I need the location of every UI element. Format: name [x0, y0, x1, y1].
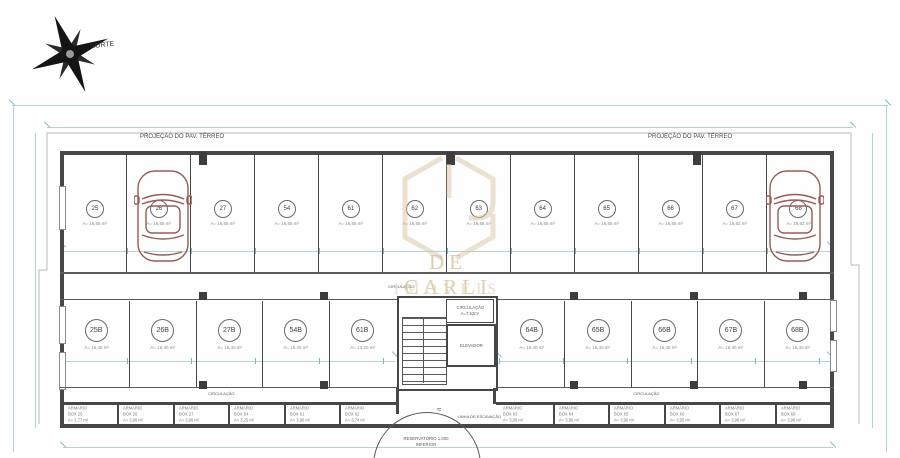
storage-box-label: A= 3,96 m²	[725, 418, 745, 423]
stall-area: A= 18,56 m²	[466, 221, 491, 226]
car-top-view-icon	[766, 169, 824, 268]
parking-stall-25B: 25BA= 16,40 m²	[64, 301, 131, 387]
storage-box-label: A= 3,74 m²	[345, 418, 365, 423]
wall-opening	[830, 300, 837, 332]
stall-number: 27B	[218, 319, 241, 342]
stall-number: 67B	[719, 319, 742, 342]
stall-number: 67	[726, 200, 744, 218]
stall-number: 61B	[351, 319, 374, 342]
stall-number: 66	[662, 200, 680, 218]
stall-number: 27	[214, 200, 232, 218]
storage-box-box-54: ARMÁRIOBOX 54A= 3,25 m²	[230, 405, 286, 425]
projection-label-right: PROJEÇÃO DO PAV. TÉRREO	[648, 134, 732, 140]
parking-stall-61: 61A= 18,56 m²	[319, 155, 383, 272]
wall-opening	[830, 340, 837, 372]
storage-box-label: A= 3,05 m²	[503, 418, 523, 423]
reservoir-line1: RESERVATÓRIO 1.000	[383, 436, 470, 441]
parking-stall-54: 54A= 18,56 m²	[255, 155, 319, 272]
elevator: ELEVADOR	[446, 324, 496, 367]
storage-box-box-63: ARMÁRIOBOX 63A= 3,05 m²	[499, 405, 555, 425]
stall-front-line-top	[60, 272, 834, 274]
stall-area: A= 18,56 m²	[211, 221, 236, 226]
storage-box-label: BOX 66	[670, 412, 684, 417]
storage-box-label: A= 3,96 m²	[179, 418, 199, 423]
storage-box-label: ARMÁRIO	[503, 406, 522, 411]
stall-area: A= 16,40 m²	[652, 345, 677, 350]
stall-number: 26B	[151, 319, 174, 342]
stall-area: A= 18,56 m²	[275, 221, 300, 226]
column	[690, 292, 698, 300]
parking-row-bottom-right: 64BA= 16,40 m²65BA= 16,40 m²66BA= 16,40 …	[499, 301, 830, 387]
storage-box-box-27: ARMÁRIOBOX 27A= 3,96 m²	[175, 405, 231, 425]
parking-stall-26B: 26BA= 16,40 m²	[130, 301, 197, 387]
stall-number: 64B	[520, 319, 543, 342]
stall-area: A= 19,82 m²	[722, 221, 747, 226]
stair-rail	[423, 317, 424, 383]
storage-box-label: BOX 25	[68, 412, 82, 417]
storage-box-label: ARMÁRIO	[614, 406, 633, 411]
wall-segment	[396, 388, 399, 414]
storage-box-label: A= 3,95 m²	[670, 418, 690, 423]
circulation-room-area: A=7,52m²	[461, 311, 480, 316]
storage-row-right: ARMÁRIOBOX 63A= 3,05 m²ARMÁRIOBOX 64A= 3…	[499, 405, 830, 425]
storage-box-label: ARMÁRIO	[559, 406, 578, 411]
storage-box-label: BOX 68	[781, 412, 795, 417]
storage-box-label: A= 3,96 m²	[559, 418, 579, 423]
parking-stall-65: 65A= 18,56 m²	[575, 155, 639, 272]
parking-stall-65B: 65BA= 16,40 m²	[565, 301, 631, 387]
parking-stall-67: 67A= 19,82 m²	[703, 155, 767, 272]
parking-stall-66B: 66BA= 16,40 m²	[632, 301, 698, 387]
stall-number: 63	[470, 200, 488, 218]
storage-box-label: BOX 61	[290, 412, 304, 417]
storage-row-left: ARMÁRIOBOX 25A= 1,77 m²ARMÁRIOBOX 26A= 3…	[64, 405, 396, 425]
storage-box-box-61: ARMÁRIOBOX 61A= 3,96 m²	[286, 405, 342, 425]
storage-box-label: BOX 26	[123, 412, 137, 417]
reservoir-line2: INFERIOR	[383, 442, 470, 447]
stall-area: A= 16,40 m²	[586, 345, 611, 350]
corridor-left-label: CIRCULAÇÃO	[208, 392, 234, 397]
storage-box-box-68: ARMÁRIOBOX 68A= 3,96 m²	[777, 405, 831, 425]
stall-area: A= 18,56 m²	[530, 221, 555, 226]
parking-stall-64B: 64BA= 16,40 m²	[499, 301, 565, 387]
column	[570, 292, 578, 300]
column	[199, 292, 207, 300]
wall-segment	[493, 388, 496, 404]
storage-box-label: A= 3,96 m²	[614, 418, 634, 423]
storage-box-label: BOX 64	[559, 412, 573, 417]
stall-area: A= 18,56 m²	[658, 221, 683, 226]
stall-area: A= 18,56 m²	[338, 221, 363, 226]
storage-box-label: ARMÁRIO	[345, 406, 364, 411]
storage-box-label: BOX 67	[725, 412, 739, 417]
stall-number: 54B	[284, 319, 307, 342]
stall-area: A= 18,56 m²	[402, 221, 427, 226]
stall-area: A= 16,40 m²	[785, 345, 810, 350]
storage-box-label: A= 3,96 m²	[290, 418, 310, 423]
parking-stall-64: 64A= 18,56 m²	[511, 155, 575, 272]
storage-box-label: ARMÁRIO	[725, 406, 744, 411]
storage-box-box-26: ARMÁRIOBOX 26A= 3,96 m²	[119, 405, 175, 425]
storage-box-label: BOX 65	[614, 412, 628, 417]
stall-area: A= 16,40 m²	[150, 345, 175, 350]
stall-number: 54	[278, 200, 296, 218]
parking-stall-61B: 61BA= 12,20 m²	[330, 301, 396, 387]
stall-number: 65	[598, 200, 616, 218]
stall-number: 64	[534, 200, 552, 218]
stall-number: 61	[342, 200, 360, 218]
stall-number: 66B	[653, 319, 676, 342]
projection-label-left: PROJEÇÃO DO PAV. TÉRREO	[140, 134, 224, 140]
storage-box-label: A= 3,96 m²	[123, 418, 143, 423]
staircase	[402, 317, 447, 385]
parking-stall-27: 27A= 18,56 m²	[191, 155, 255, 272]
storage-box-box-65: ARMÁRIOBOX 65A= 3,96 m²	[610, 405, 666, 425]
storage-box-box-62: ARMÁRIOBOX 62A= 3,74 m²	[341, 405, 395, 425]
parking-stall-63: 63A= 18,56 m²	[447, 155, 511, 272]
storage-box-label: BOX 62	[345, 412, 359, 417]
stall-area: A= 12,20 m²	[350, 345, 375, 350]
stall-area: A= 16,40 m²	[217, 345, 242, 350]
parking-row-bottom-left: 25BA= 16,40 m²26BA= 16,40 m²27BA= 16,40 …	[64, 301, 396, 387]
reservoir-label: RESERVATÓRIO 1.000 INFERIOR	[375, 436, 477, 448]
stall-number: 62	[406, 200, 424, 218]
parking-stall-62: 62A= 18,56 m²	[383, 155, 447, 272]
storage-box-label: ARMÁRIO	[68, 406, 87, 411]
excavation-label: LINHA DE ESCAVAÇÃO	[457, 415, 501, 420]
column	[799, 292, 807, 300]
parking-stall-54B: 54BA= 16,40 m²	[263, 301, 330, 387]
floor-plan-drawing: NORTE PROJEÇÃO DO PAV. TÉRREO PROJEÇÃO D…	[0, 0, 900, 458]
stall-number: 25B	[85, 319, 108, 342]
stall-area: A= 16,40 m²	[84, 345, 109, 350]
core-corridor-label: CIRCULAÇÃO	[388, 285, 414, 290]
parking-stall-27B: 27BA= 16,40 m²	[197, 301, 264, 387]
stall-front-line-bottom	[60, 387, 397, 388]
circulation-room-label: CIRCULAÇÃO	[456, 305, 484, 310]
storage-box-box-67: ARMÁRIOBOX 67A= 3,96 m²	[721, 405, 777, 425]
corridor-right-label: CIRCULAÇÃO	[633, 392, 659, 397]
storage-box-label: ARMÁRIO	[781, 406, 800, 411]
elevator-label: ELEVADOR	[460, 343, 483, 348]
stall-area: A= 18,56 m²	[83, 221, 108, 226]
circulation-room: CIRCULAÇÃO A=7,52m²	[446, 299, 494, 323]
storage-box-box-64: ARMÁRIOBOX 64A= 3,96 m²	[555, 405, 611, 425]
parking-stall-25: 25A= 18,56 m²	[64, 155, 128, 272]
corridor-line	[496, 299, 834, 300]
car-top-view-icon	[134, 169, 192, 268]
storage-box-label: BOX 27	[179, 412, 193, 417]
storage-box-box-66: ARMÁRIOBOX 66A= 3,95 m²	[666, 405, 722, 425]
storage-box-label: A= 3,96 m²	[781, 418, 801, 423]
stall-front-line-bottom	[496, 387, 834, 388]
stall-number: 25	[86, 200, 104, 218]
stall-area: A= 16,40 m²	[719, 345, 744, 350]
stall-area: A= 16,40 m²	[519, 345, 544, 350]
column	[320, 292, 328, 300]
storage-box-label: ARMÁRIO	[290, 406, 309, 411]
storage-box-label: ARMÁRIO	[234, 406, 253, 411]
stall-number: 65B	[587, 319, 610, 342]
stall-area: A= 18,56 m²	[594, 221, 619, 226]
storage-box-label: ARMÁRIO	[179, 406, 198, 411]
storage-box-label: A= 3,25 m²	[234, 418, 254, 423]
storage-box-label: A= 1,77 m²	[68, 418, 88, 423]
stall-number: 68B	[786, 319, 809, 342]
storage-box-label: ARMÁRIO	[670, 406, 689, 411]
storage-box-label: ARMÁRIO	[123, 406, 142, 411]
parking-stall-66: 66A= 18,56 m²	[639, 155, 703, 272]
stall-area: A= 16,40 m²	[283, 345, 308, 350]
storage-box-box-25: ARMÁRIOBOX 25A= 1,77 m²	[64, 405, 120, 425]
parking-stall-68B: 68BA= 16,40 m²	[765, 301, 830, 387]
parking-stall-67B: 67BA= 16,40 m²	[698, 301, 764, 387]
corridor-line	[60, 299, 397, 300]
storage-box-label: BOX 54	[234, 412, 248, 417]
storage-box-label: BOX 63	[503, 412, 517, 417]
